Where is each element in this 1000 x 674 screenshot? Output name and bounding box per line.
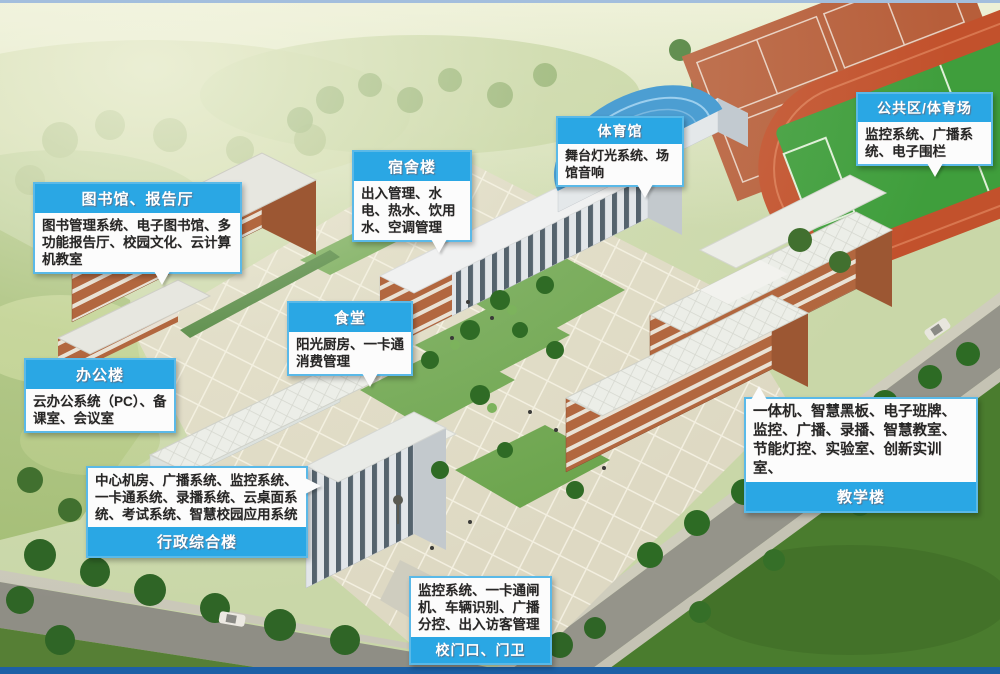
callout-teaching-building: 教学楼 一体机、智慧黑板、电子班牌、监控、广播、录播、智慧教室、节能灯控、实验室… — [744, 397, 978, 513]
callout-gymnasium-body: 舞台灯光系统、场馆音响 — [558, 144, 682, 185]
callout-admin-building: 行政综合楼 中心机房、广播系统、监控系统、一卡通系统、录播系统、云桌面系统、考试… — [86, 466, 308, 558]
callout-gate-body: 监控系统、一卡通闸机、车辆识别、广播分控、出入访客管理 — [411, 578, 550, 637]
callout-dormitory-title: 宿舍楼 — [354, 152, 470, 181]
callout-dormitory: 宿舍楼 出入管理、水电、热水、饮用水、空调管理 — [352, 150, 472, 242]
callout-dormitory-body: 出入管理、水电、热水、饮用水、空调管理 — [354, 181, 470, 240]
callout-teaching-building-body: 一体机、智慧黑板、电子班牌、监控、广播、录播、智慧教室、节能灯控、实验室、创新实… — [746, 399, 976, 482]
callout-gate-title: 校门口、门卫 — [411, 637, 550, 663]
callout-gymnasium-title: 体育馆 — [558, 118, 682, 144]
callout-library-title: 图书馆、报告厅 — [35, 184, 240, 213]
callout-canteen-title: 食堂 — [289, 303, 411, 332]
smart-campus-overview: 图书馆、报告厅 图书管理系统、电子图书馆、多功能报告厅、校园文化、云计算机教室 … — [0, 0, 1000, 674]
callout-library: 图书馆、报告厅 图书管理系统、电子图书馆、多功能报告厅、校园文化、云计算机教室 — [33, 182, 242, 274]
callout-library-body: 图书管理系统、电子图书馆、多功能报告厅、校园文化、云计算机教室 — [35, 213, 240, 272]
top-border-line — [0, 0, 1000, 3]
callout-teaching-building-title: 教学楼 — [746, 482, 976, 511]
callout-public-stadium: 公共区/体育场 监控系统、广播系统、电子围栏 — [856, 92, 993, 166]
bottom-border-bar — [0, 667, 1000, 674]
callout-canteen-body: 阳光厨房、一卡通消费管理 — [289, 332, 411, 374]
campus-aerial-view — [0, 0, 1000, 674]
callout-office: 办公楼 云办公系统（PC）、备课室、会议室 — [24, 358, 176, 433]
callout-admin-building-body: 中心机房、广播系统、监控系统、一卡通系统、录播系统、云桌面系统、考试系统、智慧校… — [88, 468, 306, 527]
callout-admin-building-title: 行政综合楼 — [88, 527, 306, 556]
callout-office-body: 云办公系统（PC）、备课室、会议室 — [26, 389, 174, 431]
callout-gymnasium: 体育馆 舞台灯光系统、场馆音响 — [556, 116, 684, 187]
callout-public-stadium-body: 监控系统、广播系统、电子围栏 — [858, 122, 991, 164]
callout-public-stadium-title: 公共区/体育场 — [858, 94, 991, 122]
callout-canteen: 食堂 阳光厨房、一卡通消费管理 — [287, 301, 413, 376]
callout-gate: 校门口、门卫 监控系统、一卡通闸机、车辆识别、广播分控、出入访客管理 — [409, 576, 552, 665]
callout-office-title: 办公楼 — [26, 360, 174, 389]
